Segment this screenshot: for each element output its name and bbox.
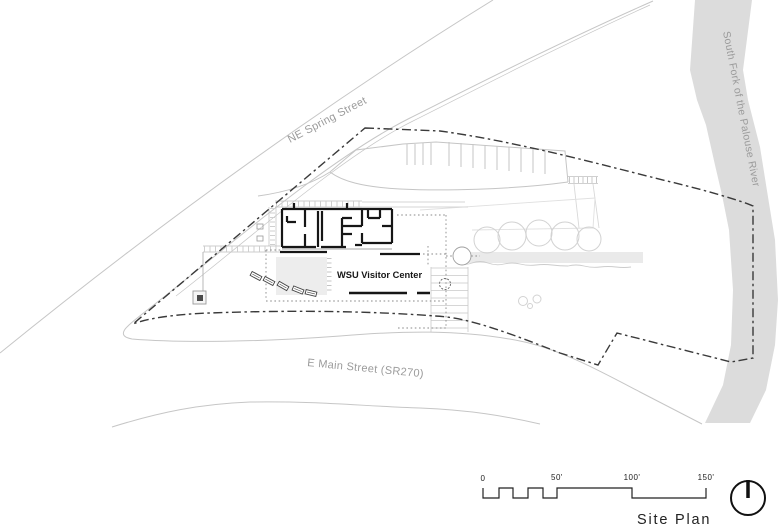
north-arrow-icon <box>731 480 765 515</box>
road-spring-se-edge <box>123 1 702 424</box>
building-label: WSU Visitor Center <box>337 270 422 280</box>
site-plan-drawing: NE Spring Street E Main Street (SR270) S… <box>0 0 780 530</box>
planter-circle <box>453 247 471 265</box>
scale-bar: 0 50' 100' 150' <box>481 473 715 498</box>
kiosk <box>193 291 206 304</box>
gravel-path <box>456 252 643 263</box>
landscape-slope <box>362 198 595 230</box>
drawing-title: Site Plan <box>637 512 711 528</box>
shrub-icon <box>528 304 533 309</box>
scale-label-50: 50' <box>551 473 563 482</box>
scale-label-0: 0 <box>481 474 486 483</box>
road-spring-nw-edge <box>0 0 493 353</box>
parking-lot <box>258 142 568 196</box>
tree-icon <box>498 222 526 250</box>
site-steps <box>431 267 468 332</box>
scale-label-100: 100' <box>624 473 641 482</box>
tree-icon <box>474 227 500 253</box>
street-label-ne-spring: NE Spring Street <box>286 95 369 146</box>
tree-icon <box>526 220 552 246</box>
shrub-icon <box>533 295 541 303</box>
scale-label-150: 150' <box>698 473 715 482</box>
street-label-e-main: E Main Street (SR270) <box>307 357 425 380</box>
tree-icon <box>577 227 601 251</box>
site-plan-page: NE Spring Street E Main Street (SR270) S… <box>0 0 780 530</box>
road-main-s-edge <box>112 402 540 427</box>
tree-icon <box>551 222 579 250</box>
tree-well-circle <box>440 279 451 290</box>
shrub-icon <box>519 297 528 306</box>
